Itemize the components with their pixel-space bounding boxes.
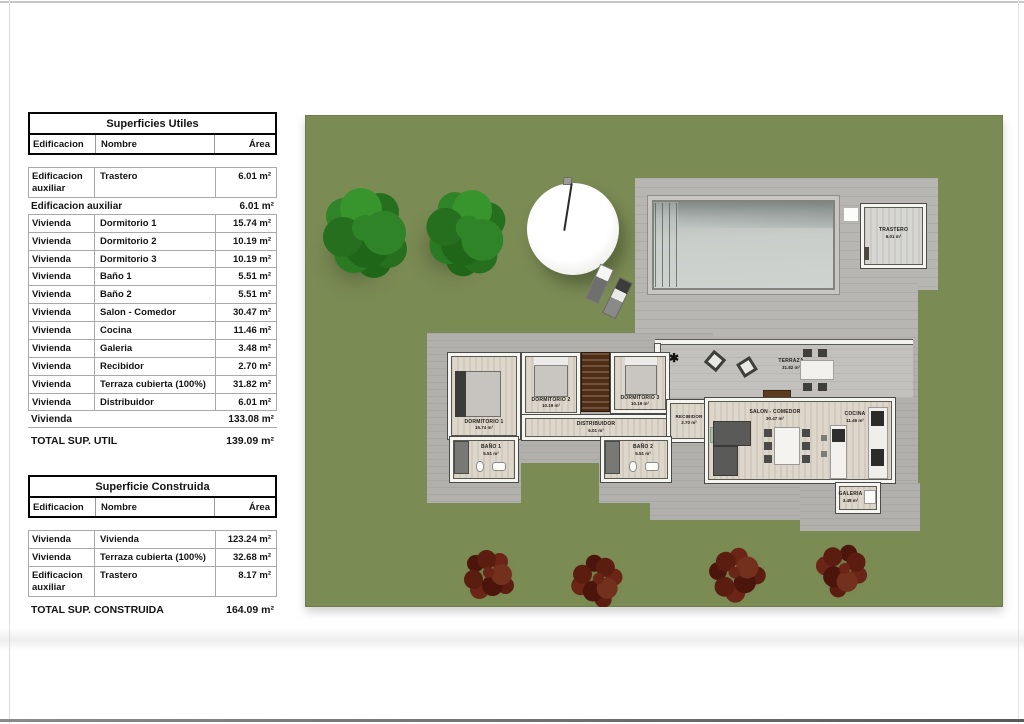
cell-edificacion: Vivienda	[29, 268, 94, 285]
room-dormitorio-3: DORMITORIO 3 10.19 m²	[611, 353, 669, 413]
cell-edificacion: Vivienda	[29, 531, 94, 548]
col-header-edificacion: Edificacion	[30, 498, 95, 516]
table-title: Superficie Construida	[30, 477, 275, 498]
cell-area: 123.24 m²	[215, 531, 276, 548]
room-name: DORMITORIO 1	[451, 419, 517, 426]
table-row: Vivienda Terraza cubierta (100%) 31.82 m…	[28, 376, 277, 394]
cell-area: 31.82 m²	[215, 376, 276, 393]
room-bano-2: BAÑO 2 5.51 m²	[601, 437, 671, 482]
room-label-dormitorio1: DORMITORIO 1 15.74 m²	[451, 419, 517, 431]
stool-icon	[821, 435, 827, 441]
cooktop-icon	[832, 429, 845, 442]
table-title: Superficies Utiles	[30, 114, 275, 135]
washer-icon	[864, 490, 876, 504]
table-row: Vivienda Terraza cubierta (100%) 32.68 m…	[28, 549, 277, 567]
cell-nombre: Baño 2	[94, 286, 215, 303]
cell-nombre: Dormitorio 3	[94, 251, 215, 268]
cell-edificacion: Vivienda	[29, 304, 94, 321]
cell-area: 3.48 m²	[215, 340, 276, 357]
cell-area: 10.19 m²	[215, 251, 276, 268]
toilet-icon	[629, 461, 637, 472]
bed-pillows	[455, 371, 466, 417]
sink-icon	[492, 462, 506, 471]
room-label-dormitorio3: DORMITORIO 3 10.19 m²	[614, 395, 666, 407]
shower-icon	[605, 441, 620, 474]
table-row: Vivienda Dormitorio 3 10.19 m²	[28, 251, 277, 269]
col-header-area: Área	[214, 498, 275, 516]
total-value: 164.09 m²	[226, 601, 277, 618]
bed-pillows	[625, 357, 657, 366]
room-galeria: GALERIA 3.48 m²	[836, 483, 880, 513]
table-header-box: Superficie Construida Edificacion Nombre…	[28, 475, 277, 518]
subtotal-label: Vivienda	[28, 411, 72, 427]
room-name: TRASTERO	[864, 227, 923, 234]
cell-nombre: Terraza cubierta (100%)	[94, 549, 215, 566]
room-label-dormitorio2: DORMITORIO 2 10.19 m²	[525, 397, 577, 409]
room-label-galeria: GALERIA 3.48 m²	[836, 491, 865, 503]
cell-area: 5.51 m²	[215, 268, 276, 285]
room-label-bano2: BAÑO 2 5.51 m²	[618, 444, 668, 456]
room-area: 5.51 m²	[467, 451, 515, 457]
table-row: Vivienda Baño 1 5.51 m²	[28, 268, 277, 286]
room-dormitorio-2: DORMITORIO 2 10.19 m²	[522, 353, 580, 416]
dining-chair-icon	[764, 455, 772, 463]
outdoor-chair-icon	[803, 349, 812, 357]
outdoor-chair-icon	[803, 383, 812, 391]
tree-red-icon	[727, 565, 743, 581]
cell-nombre: Salon - Comedor	[94, 304, 215, 321]
tree-green-icon	[452, 212, 485, 245]
cell-edificacion: Vivienda	[29, 549, 94, 566]
room-area: 10.19 m²	[525, 403, 577, 409]
total-value: 139.09 m²	[226, 432, 277, 449]
room-label-trastero: TRASTERO 6.01 m²	[864, 227, 923, 239]
room-trastero: TRASTERO 6.01 m²	[861, 204, 926, 268]
plant-icon: ✱	[669, 352, 679, 364]
room-name: BAÑO 2	[618, 444, 668, 451]
cell-edificacion: Vivienda	[29, 233, 94, 250]
page-edge-left	[9, 0, 10, 724]
cell-nombre: Dormitorio 1	[94, 215, 215, 232]
table-gap	[28, 155, 277, 167]
total-label: TOTAL SUP. CONSTRUIDA	[28, 601, 164, 618]
room-area: 3.48 m²	[836, 498, 865, 504]
cell-nombre: Terraza cubierta (100%)	[94, 376, 215, 393]
page-edge-right	[1018, 0, 1019, 724]
table-header-box: Superficies Utiles Edificacion Nombre Ár…	[28, 112, 277, 155]
subtotal-row-edificacion-auxiliar: Edificacion auxiliar 6.01 m²	[28, 198, 277, 215]
dining-chair-icon	[802, 429, 810, 437]
swimming-pool	[652, 200, 835, 290]
cell-nombre: Cocina	[94, 322, 215, 339]
site-plan: TRASTERO 6.01 m² ✱ TERRAZA 31.82 m²	[305, 115, 1003, 607]
table-superficie-construida: Superficie Construida Edificacion Nombre…	[28, 475, 277, 618]
dining-chair-icon	[764, 429, 772, 437]
table-row: Vivienda Distribuidor 6.01 m²	[28, 394, 277, 412]
subtotal-value: 133.08 m²	[228, 411, 277, 427]
room-name: GALERIA	[836, 491, 865, 498]
cell-area: 32.68 m²	[215, 549, 276, 566]
room-area: 5.51 m²	[618, 451, 668, 457]
page-edge-top	[0, 1, 1024, 3]
pool-shade	[678, 202, 833, 228]
table-superficies-utiles: Superficies Utiles Edificacion Nombre Ár…	[28, 112, 277, 449]
room-label-bano1: BAÑO 1 5.51 m²	[467, 444, 515, 456]
cell-edificacion: Edificacion auxiliar	[29, 168, 94, 197]
oven-icon	[871, 411, 884, 426]
room-label-salon: SALON - COMEDOR 30.47 m²	[730, 409, 820, 421]
room-name: DORMITORIO 2	[525, 397, 577, 404]
outdoor-chair-icon	[818, 383, 827, 391]
terrace-chair-icon	[736, 356, 758, 378]
subtotal-row-vivienda: Vivienda 133.08 m²	[28, 411, 277, 428]
terrace: ✱ TERRAZA 31.82 m²	[655, 340, 913, 398]
room-area: 6.01 m²	[864, 234, 923, 240]
room-area: 6.01 m²	[525, 428, 667, 434]
total-row-sup-construida: TOTAL SUP. CONSTRUIDA 164.09 m²	[28, 597, 277, 618]
cell-area: 2.70 m²	[215, 358, 276, 375]
cell-area: 6.01 m²	[215, 168, 276, 197]
sofa-icon	[713, 421, 751, 446]
subtotal-label: Edificacion auxiliar	[28, 198, 122, 214]
trastero-door	[864, 247, 869, 260]
cell-area: 11.46 m²	[215, 322, 276, 339]
total-row-sup-util: TOTAL SUP. UTIL 139.09 m²	[28, 428, 277, 449]
cell-area: 8.17 m²	[215, 567, 276, 596]
tree-red-icon	[483, 567, 494, 578]
cell-nombre: Baño 1	[94, 268, 215, 285]
cell-edificacion: Vivienda	[29, 322, 94, 339]
page-edge-bottom	[0, 719, 1024, 722]
table-gap	[28, 518, 277, 530]
subtotal-value: 6.01 m²	[240, 198, 277, 214]
cell-nombre: Trastero	[94, 168, 215, 197]
ac-unit	[843, 207, 859, 222]
col-header-nombre: Nombre	[95, 135, 214, 153]
cell-nombre: Distribuidor	[94, 394, 215, 411]
room-name: RECIBIDOR	[670, 414, 708, 420]
col-header-edificacion: Edificacion	[30, 135, 95, 153]
table-row: Vivienda Vivienda 123.24 m²	[28, 530, 277, 549]
cell-nombre: Galeria	[94, 340, 215, 357]
fridge-icon	[871, 449, 884, 466]
dining-table-icon	[774, 427, 800, 465]
cell-edificacion: Vivienda	[29, 215, 94, 232]
page-shadow-band	[0, 628, 1024, 650]
cell-edificacion: Vivienda	[29, 394, 94, 411]
tree-green-icon	[352, 215, 378, 241]
dining-chair-icon	[802, 455, 810, 463]
cell-nombre: Trastero	[94, 567, 215, 596]
courtyard-lawn-notch	[521, 463, 599, 503]
table-row: Edificacion auxiliar Trastero 6.01 m²	[28, 167, 277, 198]
cell-nombre: Vivienda	[94, 531, 215, 548]
toilet-icon	[476, 461, 484, 472]
cell-area: 30.47 m²	[215, 304, 276, 321]
tree-red-icon	[591, 571, 606, 586]
cell-edificacion: Vivienda	[29, 286, 94, 303]
table-row: Vivienda Recibidor 2.70 m²	[28, 358, 277, 376]
table-row: Vivienda Cocina 11.46 m²	[28, 322, 277, 340]
room-bano-1: BAÑO 1 5.51 m²	[450, 437, 518, 482]
room-area: 10.19 m²	[614, 401, 666, 407]
room-area: 2.70 m²	[670, 420, 708, 426]
room-name: DISTRIBUIDOR	[525, 421, 667, 428]
cell-edificacion: Vivienda	[29, 340, 94, 357]
cell-nombre: Dormitorio 2	[94, 233, 215, 250]
outdoor-table-icon	[800, 360, 834, 380]
cell-edificacion: Vivienda	[29, 251, 94, 268]
cell-area: 6.01 m²	[215, 394, 276, 411]
cell-area: 15.74 m²	[215, 215, 276, 232]
table-column-headers: Edificacion Nombre Área	[30, 135, 275, 153]
doormat-icon	[763, 390, 791, 398]
outdoor-chair-icon	[818, 349, 827, 357]
col-header-nombre: Nombre	[95, 498, 214, 516]
room-label-distribuidor: DISTRIBUIDOR 6.01 m²	[525, 421, 667, 433]
cell-area: 10.19 m²	[215, 233, 276, 250]
sofa-icon	[713, 446, 738, 476]
col-header-area: Área	[214, 135, 275, 153]
bed-pillows	[534, 357, 568, 366]
table-column-headers: Edificacion Nombre Área	[30, 498, 275, 516]
table-row: Vivienda Salon - Comedor 30.47 m²	[28, 304, 277, 322]
table-row: Edificacion auxiliar Trastero 8.17 m²	[28, 567, 277, 597]
cell-area: 5.51 m²	[215, 286, 276, 303]
parasol-icon	[527, 183, 619, 275]
pool-steps	[655, 203, 679, 287]
plan-sheet-page: Superficies Utiles Edificacion Nombre Ár…	[0, 0, 1024, 724]
terrace-chair-icon	[704, 350, 727, 373]
dining-chair-icon	[764, 442, 772, 450]
room-name: DORMITORIO 3	[614, 395, 666, 402]
stool-icon	[821, 451, 827, 457]
cell-edificacion: Vivienda	[29, 358, 94, 375]
table-row: Vivienda Galeria 3.48 m²	[28, 340, 277, 358]
total-label: TOTAL SUP. UTIL	[28, 432, 117, 449]
wardrobe-icon	[582, 353, 609, 411]
dining-chair-icon	[802, 442, 810, 450]
cell-nombre: Recibidor	[94, 358, 215, 375]
tree-red-icon	[837, 561, 851, 575]
room-area: 15.74 m²	[451, 425, 517, 431]
cell-edificacion: Vivienda	[29, 376, 94, 393]
sink-icon	[645, 462, 659, 471]
cell-edificacion: Edificacion auxiliar	[29, 567, 94, 596]
table-row: Vivienda Baño 2 5.51 m²	[28, 286, 277, 304]
room-name: BAÑO 1	[467, 444, 515, 451]
room-label-recibidor: RECIBIDOR 2.70 m²	[670, 414, 708, 426]
room-name: SALON - COMEDOR	[730, 409, 820, 416]
room-dormitorio-1: DORMITORIO 1 15.74 m²	[448, 353, 520, 439]
room-salon-comedor-cocina: SALON - COMEDOR 30.47 m² COCINA 11.46 m²	[705, 398, 895, 483]
table-row: Vivienda Dormitorio 2 10.19 m²	[28, 233, 277, 251]
table-row: Vivienda Dormitorio 1 15.74 m²	[28, 215, 277, 233]
shower-icon	[454, 441, 469, 474]
